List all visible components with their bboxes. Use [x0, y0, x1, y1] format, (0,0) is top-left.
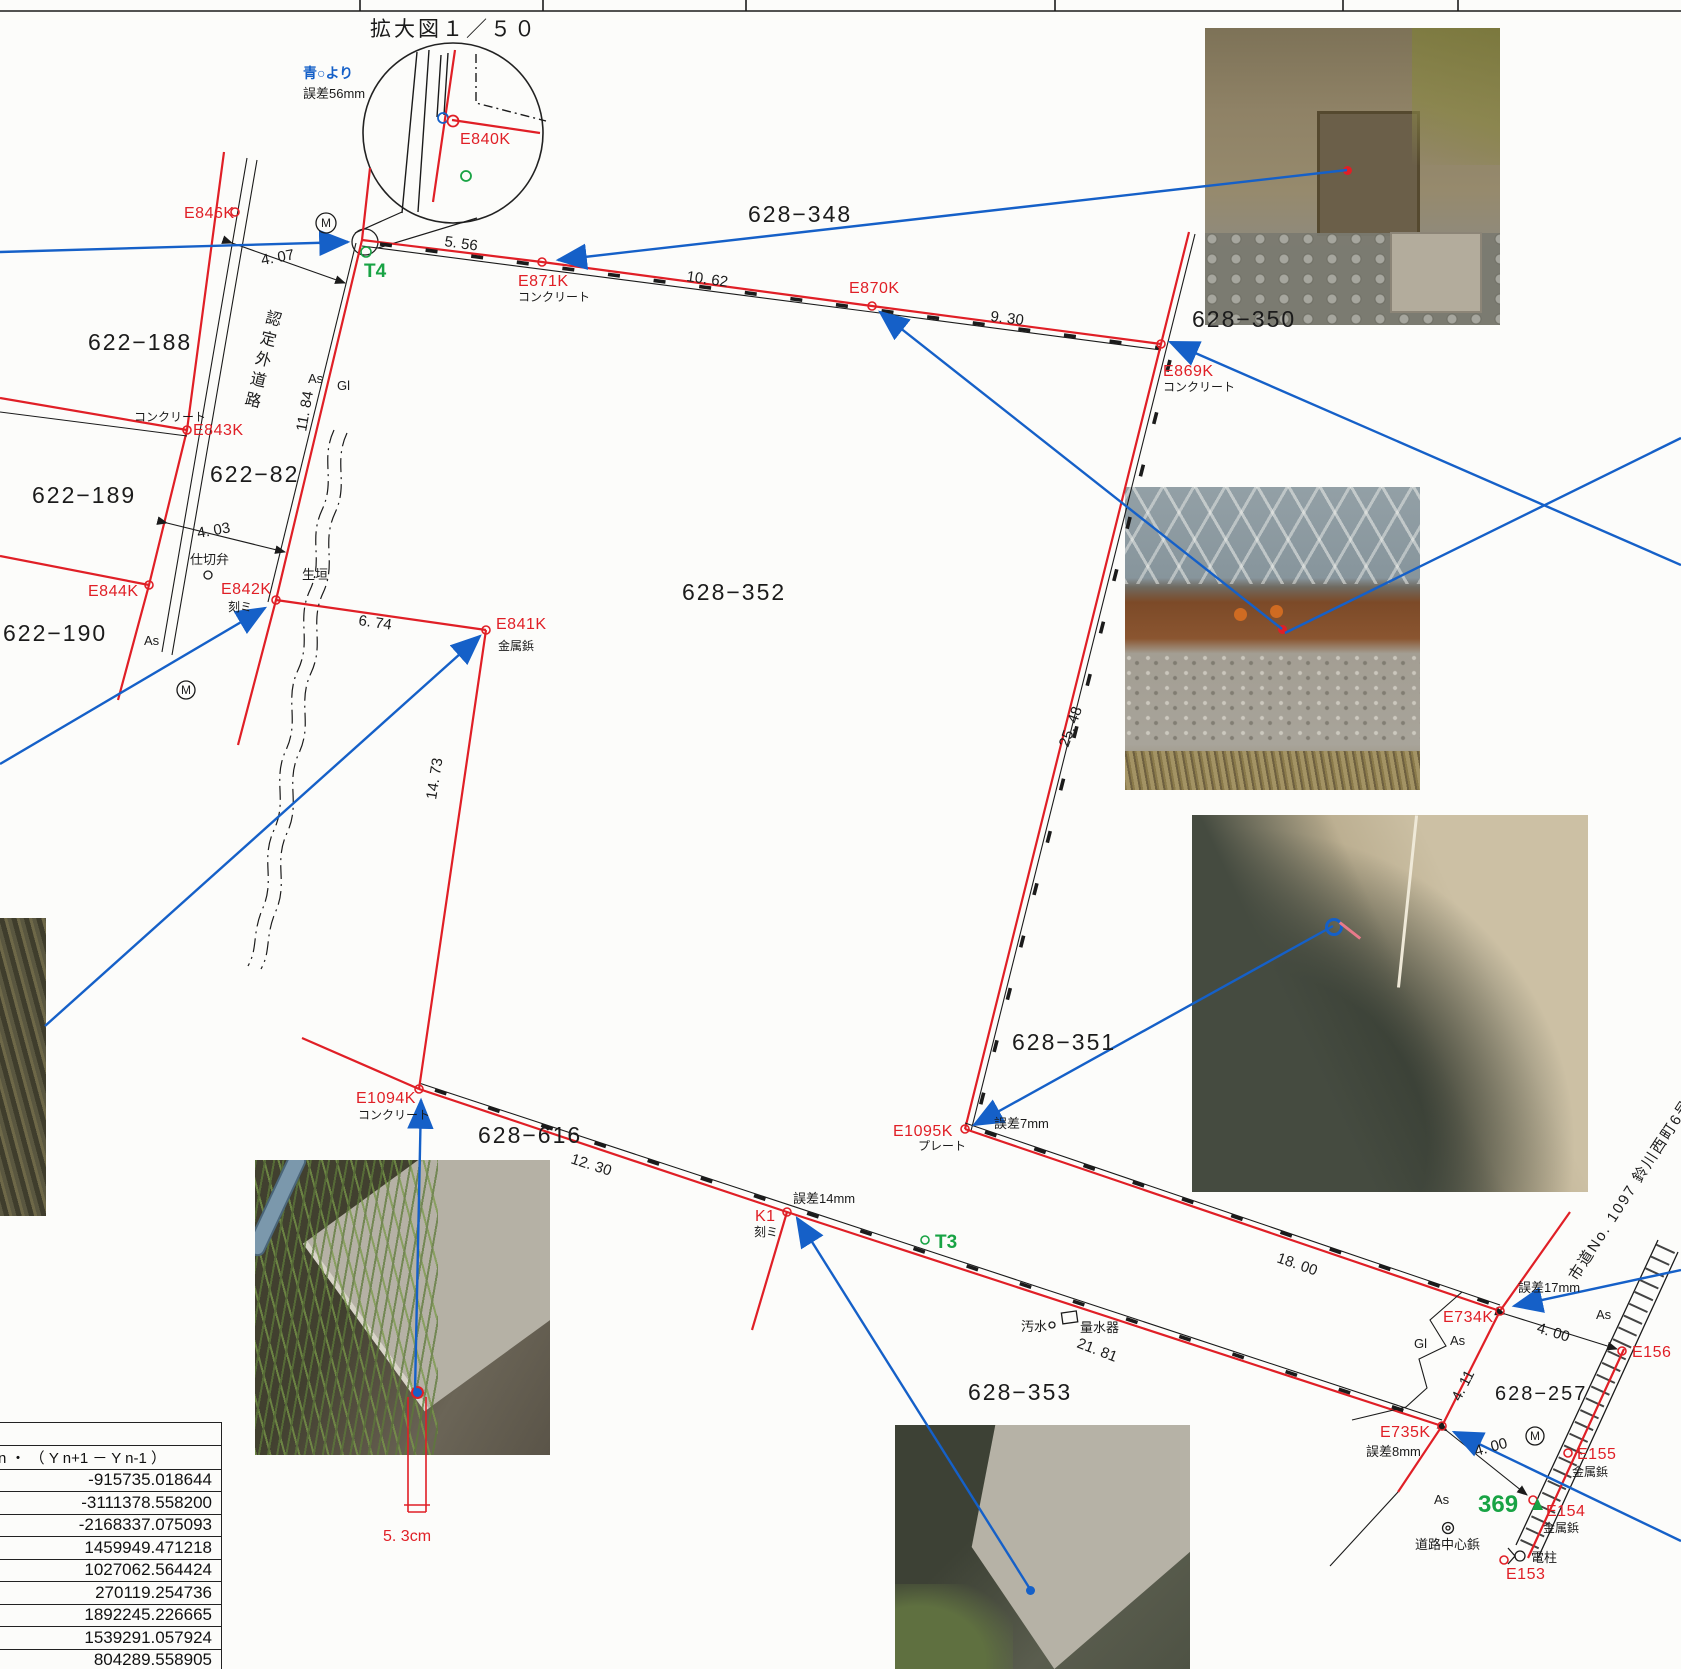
station-label-e734k: E734K [1443, 1309, 1494, 1326]
dim-4-11: 4. 11 [1448, 1367, 1478, 1403]
annotation-labels: As Gl As Gl As As As 仕切弁 生垣 汚水 量水器 道路中心鋲… [144, 371, 1612, 1565]
station-label-e844k: E844K [88, 583, 139, 600]
surface-label-gl: Gl [1414, 1336, 1427, 1351]
station-label-e846k: E846K [184, 205, 235, 222]
error-note-e1095k: 誤差7mm [994, 1116, 1049, 1131]
utility-pole-symbol [1515, 1551, 1525, 1561]
dim-4-07: 4. 07 [260, 246, 296, 269]
surface-label-as: As [1450, 1333, 1466, 1348]
road-center-pin-label: 道路中心鋲 [1415, 1537, 1480, 1552]
dim-25-48: 25. 48 [1056, 704, 1086, 749]
station-marker-e155 [1564, 1449, 1572, 1457]
leader-arrow-e871k [558, 170, 1347, 260]
station-marker-e153 [1500, 1556, 1508, 1564]
error-note-k1: 誤差14mm [793, 1191, 855, 1206]
dimension-lines [167, 243, 1617, 1495]
table-cell: -2168337.075093 [0, 1514, 222, 1537]
station-label-e735k: E735K [1380, 1424, 1431, 1441]
leader-arrow-e841k [45, 636, 480, 1026]
material-label: コンクリート [518, 290, 590, 304]
dim-21-81: 21. 81 [1075, 1335, 1120, 1366]
dimension-labels: 4. 07 4. 03 11. 84 5. 56 10. 62 9. 30 25… [196, 233, 1572, 1460]
surface-label-as: As [1434, 1492, 1450, 1507]
parcel-628-353: 628−353 [968, 1379, 1072, 1405]
table-cell: 1892245.226665 [0, 1604, 222, 1627]
dim-14-73: 14. 73 [423, 757, 446, 801]
table-cell: 270119.254736 [0, 1582, 222, 1605]
station-labels: E846K E843K コンクリート E844K E842K 刻ミ E841K … [88, 205, 1671, 1583]
material-label: コンクリート [1163, 380, 1235, 394]
leader-arrow-e870k [880, 312, 1282, 629]
inset-error-note: 誤差56mm [303, 86, 365, 101]
surface-label-as: As [308, 371, 324, 386]
surface-label-as: As [144, 633, 160, 648]
material-label: コンクリート [134, 410, 206, 424]
station-label-e842k: E842K [221, 581, 272, 598]
material-label: 金属鋲 [1543, 1520, 1579, 1535]
surface-label-gl: Gl [337, 378, 350, 393]
material-label: プレート [918, 1139, 966, 1153]
station-label-e1095k: E1095K [893, 1123, 953, 1140]
valve-symbol [204, 571, 212, 579]
offset-note-5-3cm: 5. 3cm [383, 1528, 431, 1545]
coordinate-table: n ・ （ Y n+1 － Y n-1 ） -915735.018644 -31… [0, 1422, 222, 1669]
dim-4-00-a: 4. 00 [1535, 1320, 1572, 1346]
traverse-marker-t3 [921, 1236, 929, 1244]
dim-18-00: 18. 00 [1275, 1250, 1320, 1280]
parcel-628-348: 628−348 [748, 201, 852, 227]
station-label-e154: E154 [1546, 1503, 1585, 1520]
dim-11-84: 11. 84 [293, 390, 317, 433]
station-label-e841k: E841K [496, 616, 547, 633]
inset-from-note: 青○より [303, 65, 353, 81]
error-note-e735k: 誤差8mm [1366, 1444, 1421, 1459]
benchmark-letters: M M M [181, 216, 1540, 1443]
station-label-e840k: E840K [460, 131, 511, 148]
parcel-628-352: 628−352 [682, 579, 786, 605]
table-cell: -3111378.558200 [0, 1492, 222, 1515]
water-meter-label: 量水器 [1080, 1320, 1119, 1335]
surface-label-as: As [1596, 1307, 1612, 1322]
benchmark-letter: M [321, 216, 331, 230]
valve-label: 仕切弁 [190, 552, 229, 567]
table-cell: 1539291.057924 [0, 1627, 222, 1650]
parcel-622-188: 622−188 [88, 329, 192, 355]
benchmark-letter: M [1530, 1429, 1540, 1443]
coordinate-table-header: n ・ （ Y n+1 － Y n-1 ） [0, 1445, 222, 1469]
title-block-border [0, 0, 1681, 11]
coordinate-table-blank-cell [0, 1423, 222, 1446]
parcel-628-257: 628−257 [1495, 1383, 1587, 1405]
dim-12-30: 12. 30 [569, 1151, 614, 1180]
material-label: 金属鋲 [1572, 1464, 1608, 1479]
dim-9-30: 9. 30 [990, 308, 1025, 329]
inset-title: 拡大図１／５０ [370, 18, 538, 41]
leader-arrow-e869k [1170, 342, 1681, 565]
table-cell: 1027062.564424 [0, 1559, 222, 1582]
station-label-e156: E156 [1632, 1344, 1671, 1361]
road-center-pin-symbol [1446, 1526, 1450, 1530]
parcel-622-190: 622−190 [3, 620, 107, 646]
benchmark-letter: M [181, 683, 191, 697]
parcel-622-82: 622−82 [210, 461, 299, 487]
station-label-e843k: E843K [193, 422, 244, 439]
leader-arrow-t4 [0, 242, 348, 252]
parcel-622-189: 622−189 [32, 482, 136, 508]
material-label: 刻ミ [754, 1225, 778, 1239]
station-label-e153: E153 [1506, 1566, 1545, 1583]
utility-pole-label: 電柱 [1531, 1550, 1557, 1565]
station-label-e869k: E869K [1163, 363, 1214, 380]
station-label-e870k: E870K [849, 280, 900, 297]
material-label: コンクリート [358, 1108, 430, 1122]
dim-4-03: 4. 03 [196, 519, 232, 542]
survey-drawing-sheet: 拡大図１／５０ 青○より 誤差56mm E840K [0, 0, 1681, 1669]
station-label-k1: K1 [755, 1208, 776, 1225]
station-label-e155: E155 [1577, 1446, 1616, 1463]
material-label: 金属鋲 [498, 638, 534, 653]
leader-arrow-e1095k [974, 926, 1333, 1125]
utility-pole-symbol [1508, 1548, 1515, 1564]
table-cell: 804289.558905 [0, 1649, 222, 1669]
traverse-label-t3: T3 [935, 1232, 957, 1253]
water-meter-symbol [1061, 1311, 1077, 1324]
dim-10-62: 10. 62 [685, 268, 729, 291]
traverse-label-t4: T4 [364, 261, 387, 282]
sewer-symbol [1049, 1322, 1055, 1328]
enlargement-inset: 拡大図１／５０ 青○より 誤差56mm E840K [303, 18, 546, 255]
parcel-369: 369 [1478, 1491, 1518, 1518]
road-center-pin-symbol [1443, 1523, 1454, 1534]
leader-arrow-e1094k [415, 1100, 421, 1392]
station-label-e1094k: E1094K [356, 1090, 416, 1107]
parcel-628-351: 628−351 [1012, 1029, 1116, 1055]
parcel-628-616: 628−616 [478, 1122, 582, 1148]
parcel-628-350: 628−350 [1192, 306, 1296, 332]
table-cell: 1459949.471218 [0, 1537, 222, 1560]
error-note-e734k: 誤差17mm [1518, 1280, 1580, 1295]
table-cell: -915735.018644 [0, 1469, 222, 1492]
survey-map-canvas: 拡大図１／５０ 青○より 誤差56mm E840K [0, 0, 1681, 1669]
station-label-e871k: E871K [518, 273, 569, 290]
material-label: 刻ミ [228, 600, 252, 614]
sewer-label: 汚水 [1021, 1319, 1047, 1334]
hedge-label: 生垣 [302, 567, 328, 582]
dim-6-74: 6. 74 [357, 612, 392, 633]
leader-line-cross [1285, 438, 1681, 633]
